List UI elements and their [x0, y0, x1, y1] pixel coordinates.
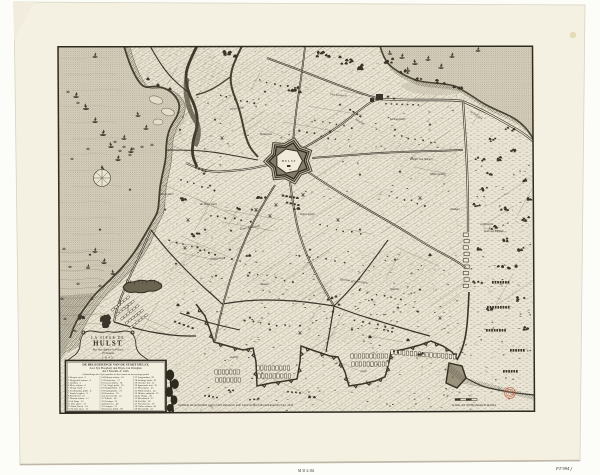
- svg-text:HULST: HULST: [93, 341, 123, 348]
- svg-text:den Dullaert: den Dullaert: [160, 193, 174, 196]
- svg-text:de Moer vaert: de Moer vaert: [200, 202, 217, 206]
- svg-text:verdroncken: verdroncken: [480, 223, 494, 226]
- svg-text:d'Orangie: d'Orangie: [102, 351, 115, 355]
- svg-text:landt van Saftinge: landt van Saftinge: [484, 230, 504, 233]
- svg-text:Willem polder: Willem polder: [430, 173, 446, 176]
- svg-text:Absdael: Absdael: [449, 207, 460, 211]
- svg-text:39 Doel poldr . 41: 39 Doel poldr . 41: [135, 408, 154, 411]
- svg-text:Absdael: Absdael: [259, 283, 269, 286]
- svg-text:Quartier: Quartier: [390, 288, 400, 291]
- svg-text:M 31 b 161: M 31 b 161: [298, 469, 315, 473]
- svg-text:quartier: quartier: [230, 356, 240, 359]
- svg-text:Gedruckt tot Amsterdam by Corn: Gedruckt tot Amsterdam by Cornelis Danck…: [178, 403, 294, 407]
- svg-text:Polder van Namen: Polder van Namen: [409, 157, 433, 161]
- svg-text:Hontenisse: Hontenisse: [259, 133, 273, 136]
- svg-text:LA SIEGE DE: LA SIEGE DE: [91, 336, 124, 340]
- svg-text:t leger: t leger: [360, 370, 368, 373]
- svg-text:Koningspolder: Koningspolder: [389, 118, 407, 121]
- svg-text:Zegers polder: Zegers polder: [300, 213, 316, 216]
- svg-text:26 Graeuw poldr . 28: 26 Graeuw poldr . 28: [101, 408, 123, 411]
- svg-text:HULST: HULST: [282, 159, 297, 163]
- svg-text:FT 994 f: FT 994 f: [555, 466, 572, 471]
- svg-text:13 St Jans steen . 15: 13 St Jans steen . 15: [68, 408, 89, 411]
- svg-text:Schala van 500 Rynlandsche Roe: Schala van 500 Rynlandsche Roeden: [452, 403, 497, 407]
- svg-text:1645: 1645: [102, 356, 114, 360]
